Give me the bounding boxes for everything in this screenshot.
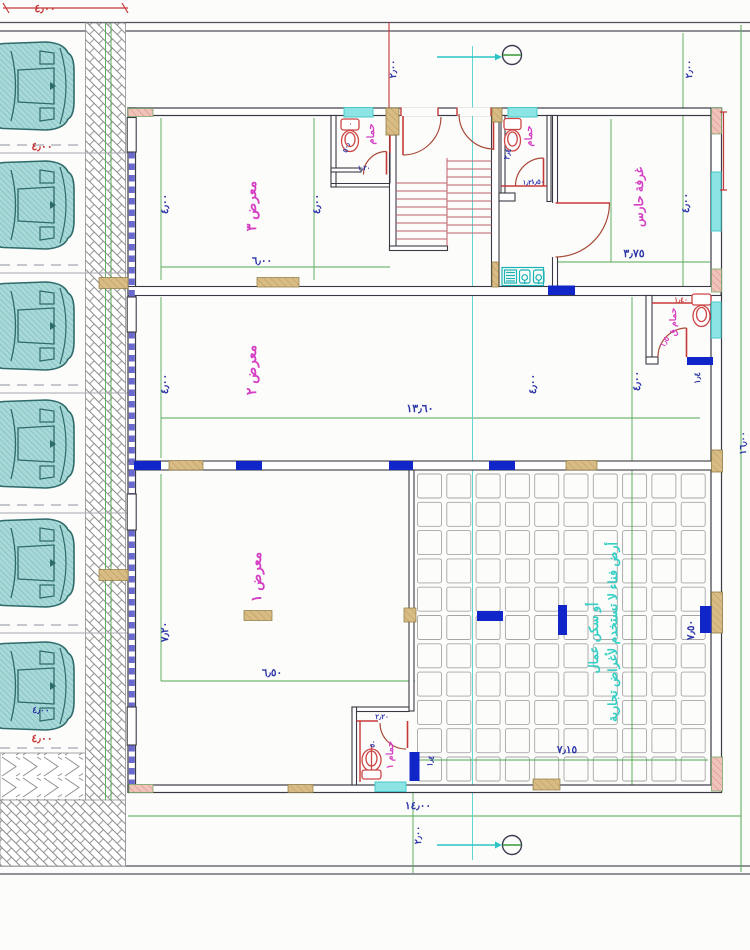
svg-text:٧٫٢٠: ٧٫٢٠ xyxy=(159,622,171,643)
svg-text:٢٫٠٠: ٢٫٠٠ xyxy=(413,826,424,844)
svg-text:٧٫١٥: ٧٫١٥ xyxy=(556,744,578,756)
svg-text:٤٫٠٠: ٤٫٠٠ xyxy=(631,371,643,391)
svg-text:٦٫٠٠: ٦٫٠٠ xyxy=(252,255,272,267)
svg-text:أرض فناء لا تستخدم لأغراض تجار: أرض فناء لا تستخدم لأغراض تجارية xyxy=(604,541,621,722)
svg-text:٧٫٥٠: ٧٫٥٠ xyxy=(685,620,697,641)
svg-text:٦٫٥٠: ٦٫٥٠ xyxy=(262,667,282,679)
svg-text:٢٫٠٠: ٢٫٠٠ xyxy=(388,60,399,78)
svg-text:٤٫٠٠: ٤٫٠٠ xyxy=(31,733,52,745)
svg-text:٢٫٤: ٢٫٤ xyxy=(502,148,513,161)
svg-text:حمام ١: حمام ١ xyxy=(385,741,396,769)
svg-text:١٫٢٠: ١٫٢٠ xyxy=(358,165,371,172)
svg-text:غرفة حارس: غرفة حارس xyxy=(632,166,647,227)
svg-text:١٫٢٠: ١٫٢٠ xyxy=(523,180,536,187)
svg-text:٤٫٠٠: ٤٫٠٠ xyxy=(527,374,539,394)
svg-text:٤٫٠٠: ٤٫٠٠ xyxy=(311,194,323,214)
svg-text:حمام ق: حمام ق xyxy=(668,307,679,336)
svg-text:٤٫٠٠: ٤٫٠٠ xyxy=(680,193,692,213)
svg-text:١٫٤: ١٫٤ xyxy=(692,372,702,384)
svg-text:١٤٫٠٠: ١٤٫٠٠ xyxy=(405,800,431,812)
svg-text:٤٫٠٠: ٤٫٠٠ xyxy=(159,194,171,214)
svg-text:٣٫٧٥: ٣٫٧٥ xyxy=(623,248,644,260)
svg-text:٤٫٠٠: ٤٫٠٠ xyxy=(31,141,52,153)
svg-text:معرض ٣: معرض ٣ xyxy=(243,181,260,231)
svg-text:معرض ١: معرض ١ xyxy=(248,552,265,602)
svg-text:١٫٤: ١٫٤ xyxy=(425,755,436,768)
svg-text:١٫٤٠: ١٫٤٠ xyxy=(674,297,688,304)
svg-text:٤٫٠٠: ٤٫٠٠ xyxy=(32,705,49,715)
svg-text:١٣٫٦٠: ١٣٫٦٠ xyxy=(406,403,433,415)
svg-text:٢٫٢٠: ٢٫٢٠ xyxy=(375,714,389,721)
svg-text:حمام: حمام xyxy=(366,123,377,144)
svg-text:٤٫٠٠: ٤٫٠٠ xyxy=(34,3,55,15)
svg-text:معرض ٢: معرض ٢ xyxy=(243,345,260,395)
svg-text:أو سكن عمال: أو سكن عمال xyxy=(585,602,602,673)
svg-text:١٦٫٠٠: ١٦٫٠٠ xyxy=(738,431,749,455)
svg-text:٤٫٠٠: ٤٫٠٠ xyxy=(159,374,171,394)
svg-text:٢٫٠٠: ٢٫٠٠ xyxy=(684,60,695,78)
svg-text:حمام: حمام xyxy=(524,125,535,146)
